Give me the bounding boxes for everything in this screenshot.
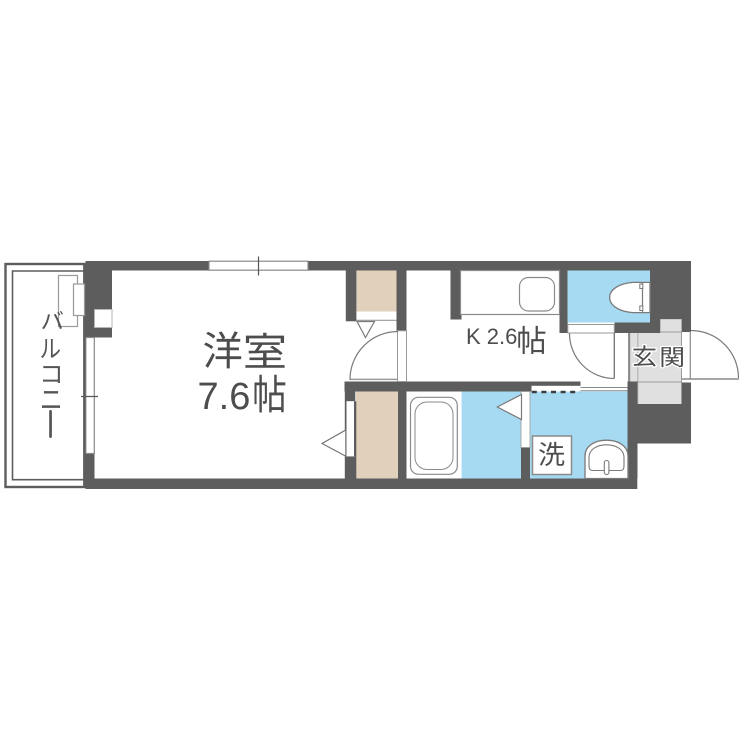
svg-text:7.6: 7.6 <box>198 376 251 418</box>
svg-text:K 2.6: K 2.6 <box>466 324 517 349</box>
